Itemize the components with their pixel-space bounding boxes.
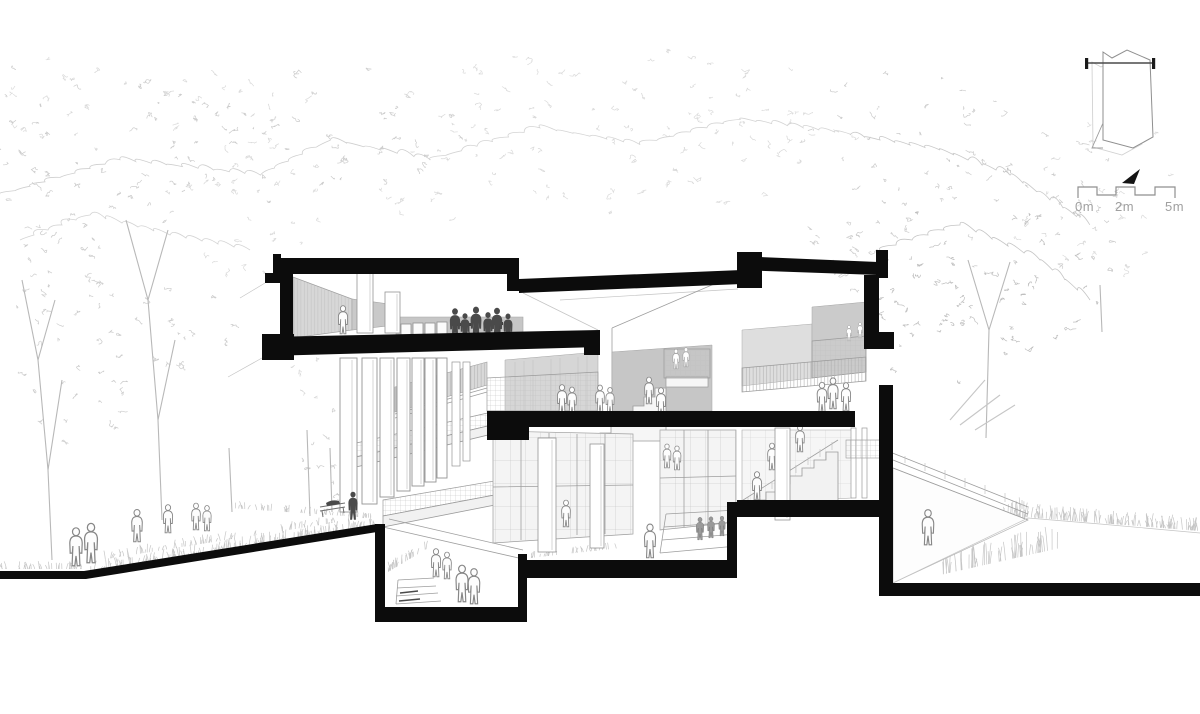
paper-background	[0, 0, 1200, 714]
level2-railing	[487, 372, 598, 411]
right-floor-cut	[737, 500, 893, 517]
roof-step	[507, 264, 519, 291]
glazing-grid	[660, 430, 736, 530]
left-wall-ledge	[265, 273, 280, 283]
courtyard-step-wall	[727, 502, 737, 572]
site-key-plan-icon	[1103, 50, 1153, 148]
slab-step	[584, 345, 600, 355]
right-ground-cut	[879, 583, 1200, 596]
scale-label-0m: 0m	[1075, 199, 1094, 214]
stair-landing	[666, 377, 708, 387]
right-wall-lower	[879, 385, 893, 590]
slim-column	[862, 428, 867, 498]
level2-slab-step	[487, 427, 529, 440]
pit-wall	[375, 524, 385, 620]
slim-column	[851, 428, 856, 498]
courtyard-ground-cut	[527, 560, 737, 578]
level2-floor-slab	[487, 411, 855, 427]
left-wall	[280, 258, 293, 334]
pit-step-wall	[518, 554, 527, 614]
section-drawing: 0m 2m 5m	[0, 0, 1200, 714]
roof-slab-left	[281, 258, 519, 274]
pit-floor-cut	[375, 607, 527, 622]
section-cut-tick	[1152, 58, 1155, 69]
parapet	[876, 250, 888, 278]
right-wall-flange	[879, 332, 894, 349]
scale-label-2m: 2m	[1115, 199, 1134, 214]
right-wall-upper	[864, 275, 879, 349]
section-cut-tick	[1085, 58, 1088, 69]
left-slab-tab	[262, 334, 294, 360]
scale-label-5m: 5m	[1165, 199, 1184, 214]
